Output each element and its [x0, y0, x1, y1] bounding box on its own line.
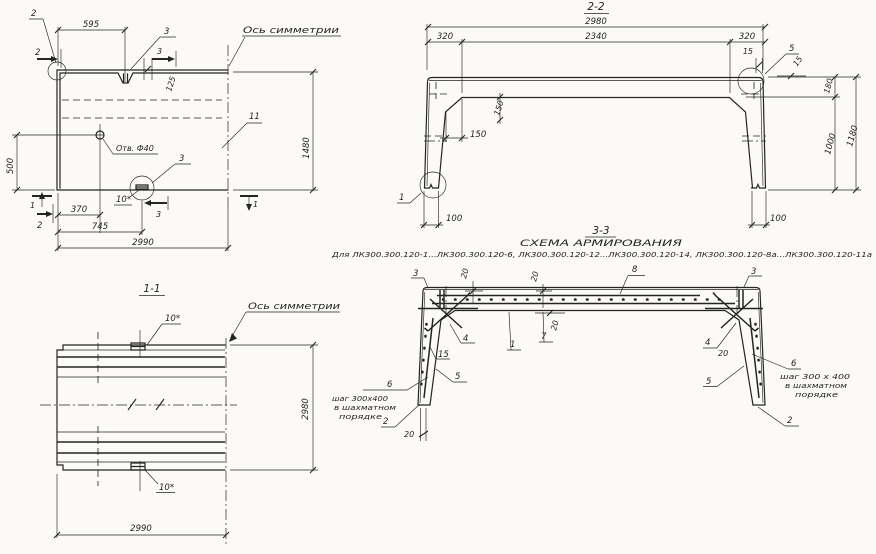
plan-dim-745: 745	[92, 222, 108, 232]
s33-bar-4-right: 4	[705, 338, 710, 348]
plan-section-mark-2-bottom: 2	[37, 221, 42, 231]
v11-outline	[57, 345, 225, 470]
plan-section-mark-3-bottom: 3	[156, 210, 161, 219]
s33-dim-20-a: 20	[459, 267, 470, 279]
s33-bar-2-left: 2	[383, 417, 388, 427]
s33-title: 3-3	[592, 225, 609, 237]
s22-dim-15-side: 15	[791, 55, 804, 69]
s33-subtitle: СХЕМА АРМИРОВАНИЯ	[520, 239, 682, 249]
s33-bar-3-right: 3	[751, 267, 756, 277]
s33-dim-20-bottom: 20	[404, 430, 414, 439]
s33-note-right-line3: порядке	[795, 391, 838, 399]
plan-detail-label-2: 2	[31, 9, 36, 19]
s33-note-right-line2: в шахматном	[785, 382, 848, 390]
v11-leader-lines	[139, 296, 340, 493]
drawing-sheet: 595 125 1480 500 370 745 2990 Ось симмет…	[0, 0, 876, 554]
plan-label-11: 11	[249, 112, 260, 122]
plan-dimension-ticks	[14, 27, 316, 251]
v11-slots	[131, 343, 145, 470]
section-2-2-view: 2-2 2980 320 2340 320 15 5 15 180 1000 1…	[397, 1, 861, 228]
s33-bar-4-left: 4	[463, 334, 468, 344]
plan-section-mark-bars	[42, 49, 249, 223]
plan-detail-circle-slot	[130, 176, 154, 200]
s33-bar-5-left: 5	[455, 372, 460, 382]
s33-bar-7: 7	[541, 332, 547, 342]
v11-dimension-ticks	[54, 342, 316, 538]
s22-detail-label-1: 1	[399, 193, 404, 203]
v11-axis-arrowhead	[229, 333, 237, 342]
s22-dim-150-vert: 150	[492, 99, 505, 116]
s33-bar-15: 15	[438, 350, 449, 360]
s33-applies-to-note: Для ЛК300.300.120-1...ЛК300.300.120-6, Л…	[331, 251, 872, 259]
s22-dim-2340: 2340	[585, 32, 607, 42]
s22-dim-180: 180	[822, 77, 835, 94]
plan-dim-500: 500	[6, 158, 16, 174]
section-3-3-view: 3-3 СХЕМА АРМИРОВАНИЯ Для ЛК300.300.120-…	[331, 225, 872, 441]
v11-dim-2980: 2980	[301, 398, 311, 420]
s22-dimension-ticks	[421, 24, 859, 228]
s22-detail-label-5: 5	[789, 44, 794, 54]
s22-dim-1180: 1180	[845, 124, 860, 147]
s22-dim-150-horiz: 150	[470, 130, 486, 140]
s33-double-lines	[420, 290, 763, 404]
s22-dim-320-left: 320	[437, 32, 453, 42]
s33-note-left-line2: в шахматном	[334, 404, 397, 412]
s33-outline	[418, 288, 765, 406]
plan-section-mark-1-left: 1	[30, 201, 35, 210]
plan-dim-125: 125	[164, 75, 177, 92]
s33-bar-6-left: 6	[387, 380, 393, 390]
plan-view: 595 125 1480 500 370 745 2990 Ось симмет…	[6, 9, 341, 251]
s33-dim-20-b: 20	[529, 270, 540, 282]
plan-dim-370: 370	[71, 205, 87, 215]
plan-outline	[57, 70, 228, 190]
v11-break-marks	[128, 399, 164, 410]
plan-dim-1480: 1480	[302, 137, 312, 159]
plan-detail-label-3-bottom: 3	[179, 154, 184, 164]
v11-dim-2990: 2990	[130, 524, 152, 534]
s33-leader-lines	[363, 237, 801, 427]
plan-hidden-lines	[62, 100, 222, 118]
plan-dim-2990: 2990	[132, 238, 154, 248]
s33-dim-20-right: 20	[718, 349, 728, 358]
s22-dim-2980: 2980	[585, 17, 607, 27]
s22-hidden-lines	[424, 82, 766, 136]
view-1-1: 1-1 Ось симметрии 10* 10* 2980 2990	[40, 283, 340, 545]
plan-bottom-slot	[136, 185, 148, 189]
plan-leader-lines	[29, 19, 341, 205]
s22-dim-100-right: 100	[770, 214, 786, 224]
plan-label-10star: 10*	[116, 195, 131, 205]
s33-note-left-line1: шаг 300х400	[332, 395, 389, 403]
v11-label-10star-top: 10*	[165, 314, 180, 324]
s33-dim-20-c: 20	[549, 319, 560, 331]
plan-axis-of-symmetry-label: Ось симметрии	[243, 26, 339, 36]
s33-bar-5-right: 5	[706, 377, 711, 387]
s22-dim-15-top: 15	[743, 47, 753, 56]
s22-dimension-lines	[420, 24, 861, 228]
plan-dim-595: 595	[83, 20, 99, 30]
s33-bar-6-right: 6	[791, 359, 797, 369]
s33-bar-1: 1	[510, 340, 515, 350]
plan-section-mark-3-top: 3	[157, 47, 162, 56]
v11-axis-of-symmetry-label: Ось симметрии	[248, 302, 340, 312]
plan-detail-label-3-top: 3	[164, 27, 169, 37]
s33-note-left-line3: порядке	[339, 413, 382, 421]
s22-detail-circle-corner	[738, 68, 764, 94]
plan-section-mark-2-top: 2	[35, 48, 40, 58]
s33-bar-2-right: 2	[787, 416, 792, 426]
plan-hole-label: Отв. Ф40	[116, 144, 154, 153]
s33-note-right-line1: шаг 300 х 400	[780, 373, 851, 381]
plan-section-mark-strokes	[32, 59, 258, 214]
s22-dim-1000: 1000	[823, 132, 838, 155]
plan-section-mark-arrowheads	[39, 56, 252, 217]
blueprint-svg: 595 125 1480 500 370 745 2990 Ось симмет…	[0, 0, 876, 554]
v11-label-10star-bottom: 10*	[159, 483, 174, 493]
s33-bar-8: 8	[632, 265, 638, 275]
v11-title: 1-1	[143, 283, 160, 295]
s22-title: 2-2	[587, 1, 604, 13]
s22-dim-320-right: 320	[739, 32, 755, 42]
plan-dimension-lines	[17, 27, 318, 251]
s22-dim-100-left: 100	[446, 214, 462, 224]
plan-section-mark-1-right: 1	[253, 200, 258, 209]
s33-bar-3-left: 3	[413, 269, 418, 279]
s33-dimension-lines	[421, 281, 566, 441]
